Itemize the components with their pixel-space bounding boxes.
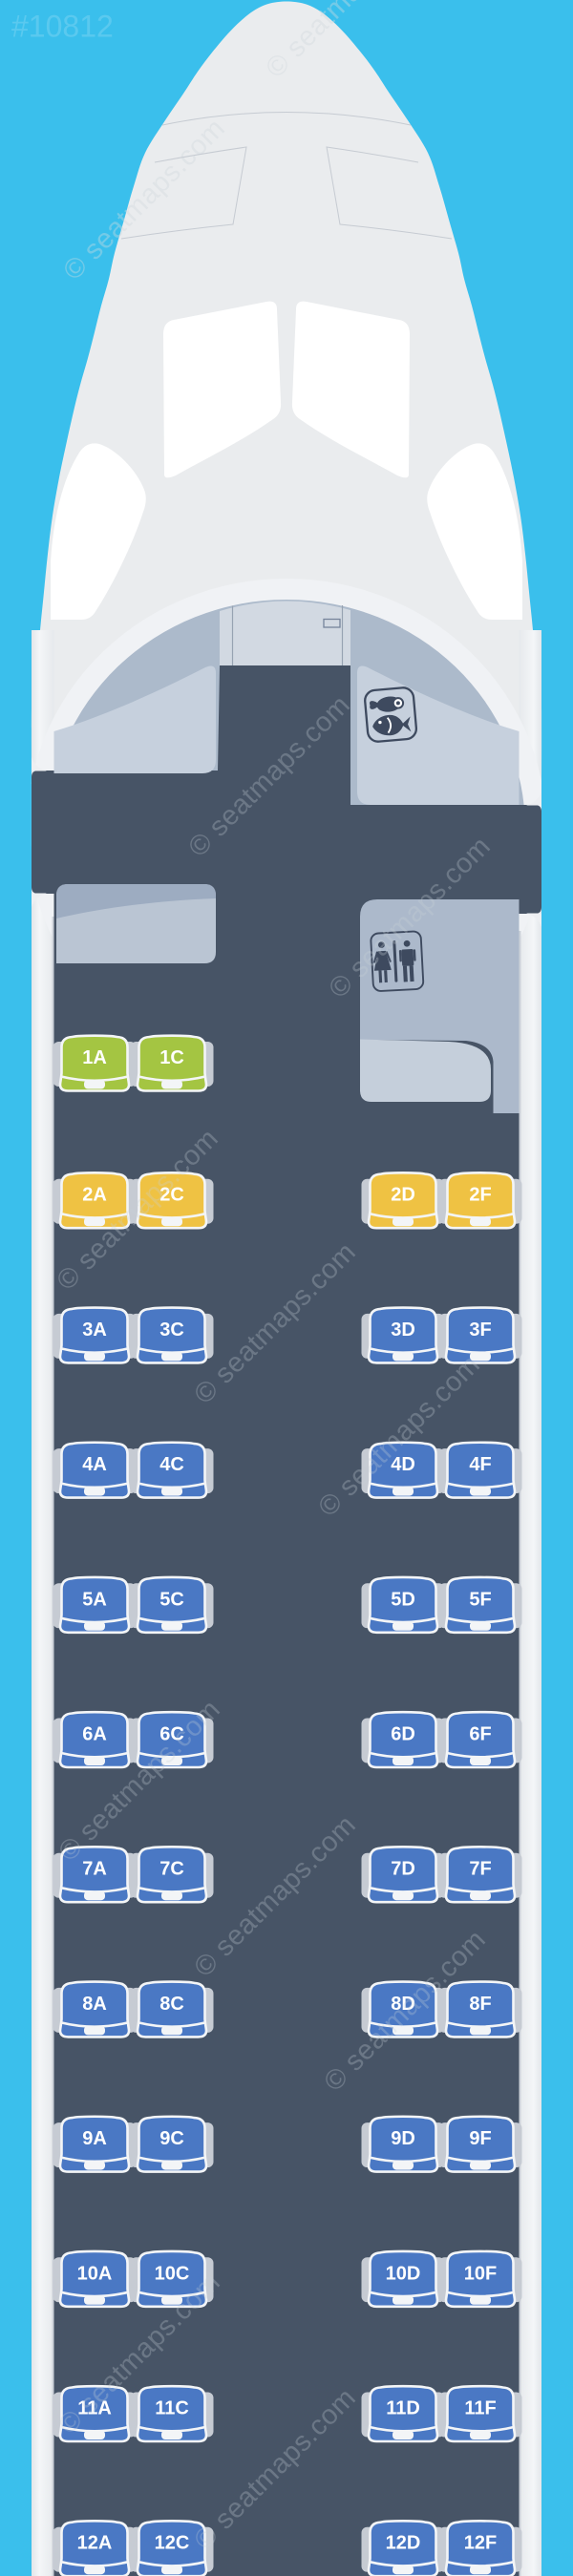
svg-text:2A: 2A [82, 1185, 107, 1206]
svg-text:3A: 3A [82, 1320, 107, 1341]
svg-text:12C: 12C [155, 2533, 190, 2554]
svg-text:7F: 7F [469, 1859, 491, 1880]
svg-text:2D: 2D [391, 1185, 415, 1206]
svg-text:9C: 9C [159, 2128, 184, 2149]
svg-text:#10812: #10812 [11, 10, 114, 44]
svg-text:10D: 10D [386, 2263, 421, 2284]
svg-text:9A: 9A [82, 2128, 107, 2149]
svg-text:12D: 12D [386, 2533, 421, 2554]
svg-text:3F: 3F [469, 1320, 491, 1341]
svg-text:1A: 1A [82, 1047, 107, 1068]
svg-text:1C: 1C [159, 1047, 184, 1068]
svg-text:9D: 9D [391, 2128, 415, 2149]
svg-text:6F: 6F [469, 1724, 491, 1745]
svg-text:12A: 12A [77, 2533, 113, 2554]
svg-text:5F: 5F [469, 1589, 491, 1610]
svg-text:12F: 12F [464, 2533, 497, 2554]
svg-text:10F: 10F [464, 2263, 497, 2284]
svg-text:2F: 2F [469, 1185, 491, 1206]
svg-text:4A: 4A [82, 1454, 107, 1475]
svg-text:11F: 11F [464, 2398, 496, 2419]
svg-text:6A: 6A [82, 1724, 107, 1745]
svg-text:3C: 3C [159, 1320, 184, 1341]
svg-text:5D: 5D [391, 1589, 415, 1610]
svg-text:7C: 7C [159, 1859, 184, 1880]
svg-text:8A: 8A [82, 1994, 107, 2015]
svg-text:9F: 9F [469, 2128, 491, 2149]
svg-text:11D: 11D [386, 2398, 420, 2419]
svg-text:10A: 10A [77, 2263, 113, 2284]
svg-text:5C: 5C [159, 1589, 184, 1610]
svg-text:4C: 4C [159, 1454, 184, 1475]
svg-text:7D: 7D [391, 1859, 415, 1880]
svg-text:3D: 3D [391, 1320, 415, 1341]
svg-text:11C: 11C [155, 2398, 189, 2419]
svg-text:4F: 4F [469, 1454, 491, 1475]
svg-text:7A: 7A [82, 1859, 107, 1880]
svg-text:5A: 5A [82, 1589, 107, 1610]
svg-text:6D: 6D [391, 1724, 415, 1745]
svg-text:8F: 8F [469, 1994, 491, 2015]
svg-text:8C: 8C [159, 1994, 184, 2015]
svg-text:10C: 10C [155, 2263, 190, 2284]
